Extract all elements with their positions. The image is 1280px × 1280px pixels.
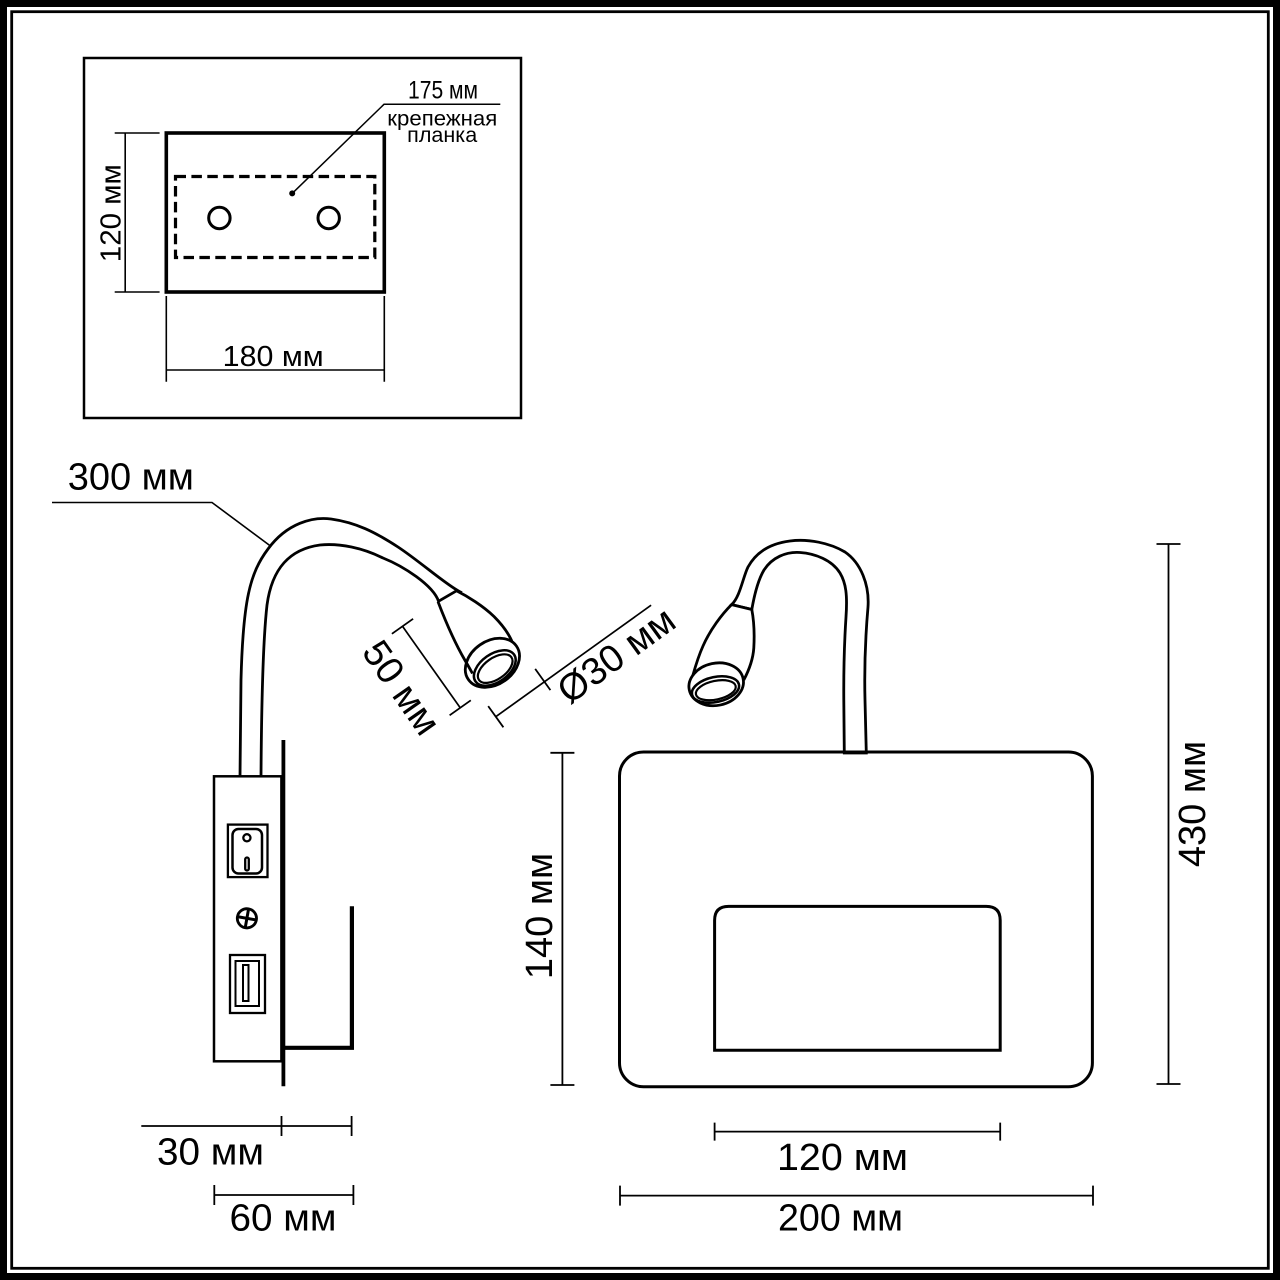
- svg-text:430 мм: 430 мм: [1172, 741, 1214, 867]
- svg-text:180 мм: 180 мм: [223, 341, 324, 373]
- svg-text:200 мм: 200 мм: [778, 1198, 903, 1240]
- svg-text:140 мм: 140 мм: [519, 853, 561, 979]
- svg-text:30 мм: 30 мм: [157, 1132, 264, 1174]
- svg-text:175 мм: 175 мм: [408, 76, 478, 104]
- svg-text:120 мм: 120 мм: [777, 1137, 908, 1179]
- svg-text:планка: планка: [407, 123, 477, 147]
- svg-text:60 мм: 60 мм: [230, 1198, 337, 1240]
- svg-text:120 мм: 120 мм: [96, 164, 128, 262]
- svg-text:300 мм: 300 мм: [68, 457, 194, 499]
